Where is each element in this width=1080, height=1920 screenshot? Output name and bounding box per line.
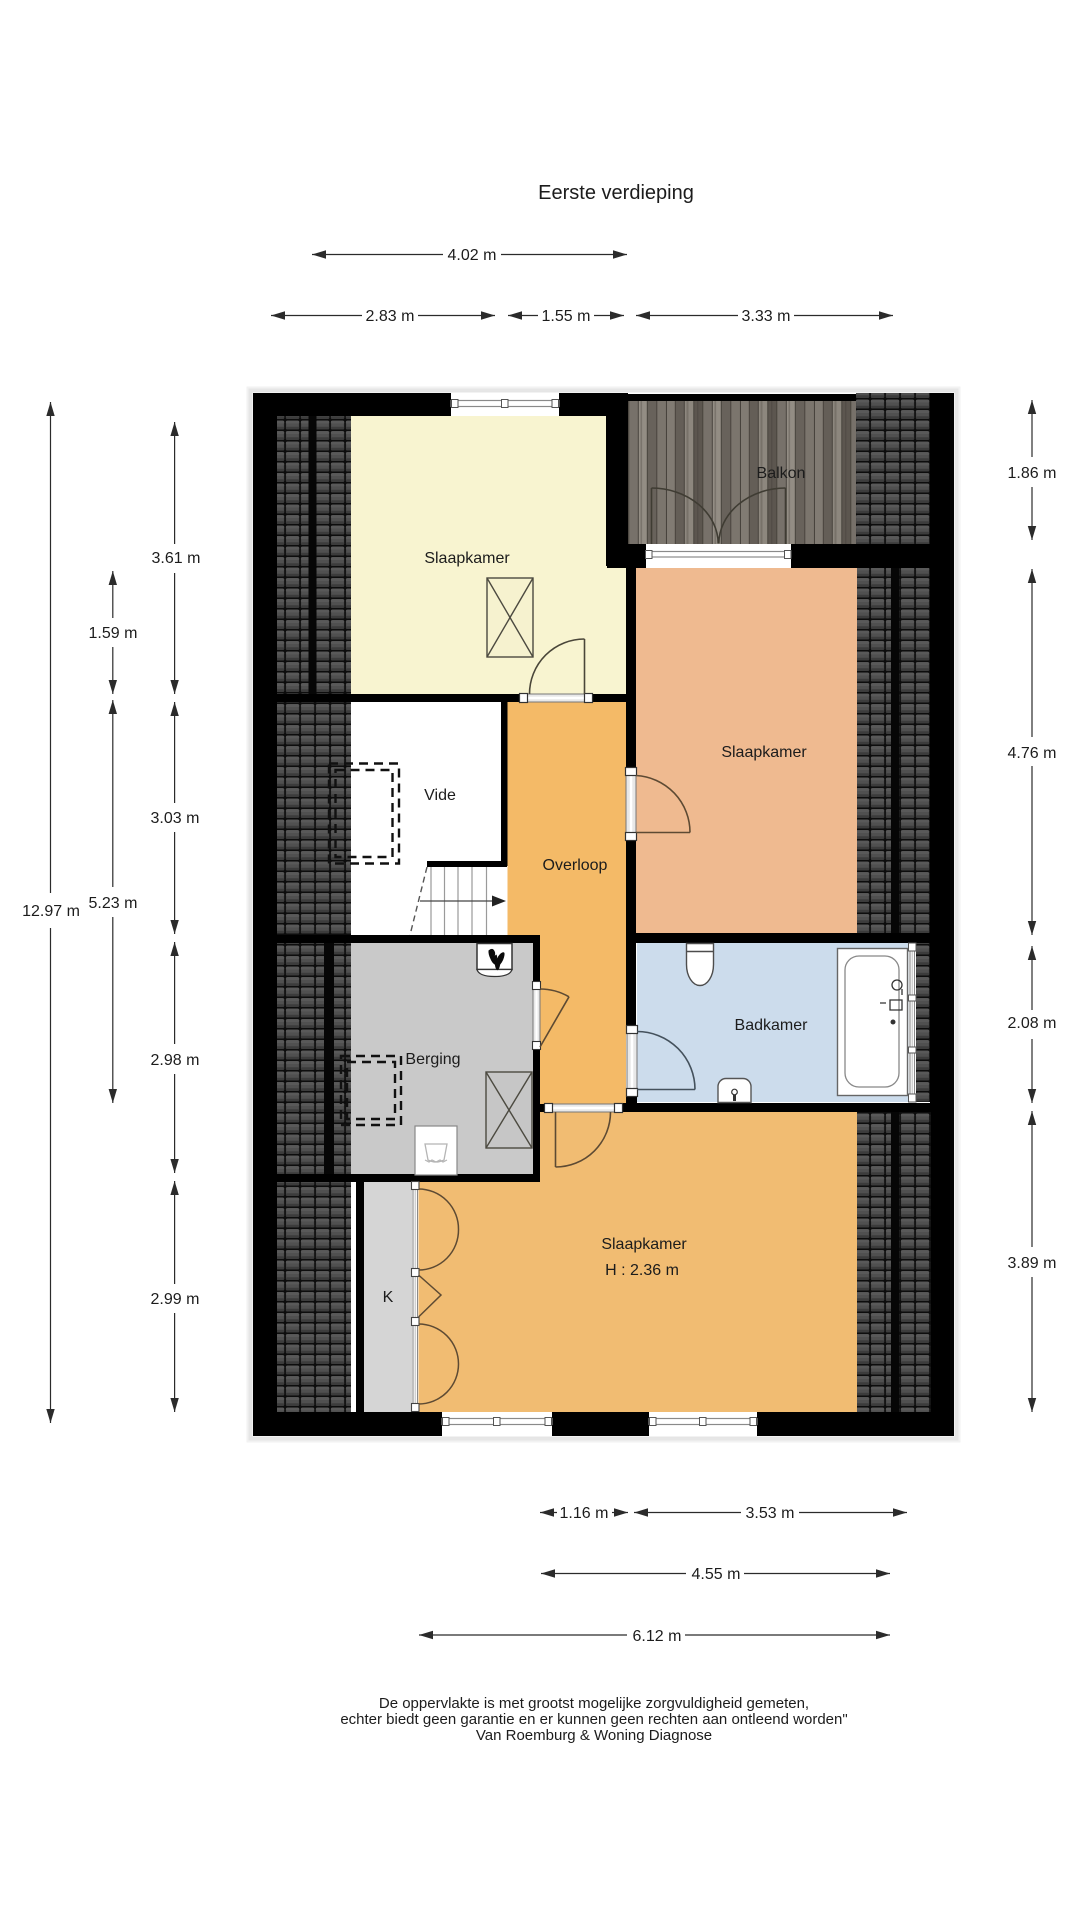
svg-text:Overloop: Overloop (543, 857, 608, 874)
svg-text:3.33 m: 3.33 m (742, 308, 791, 325)
svg-text:3.53 m: 3.53 m (746, 1505, 795, 1522)
svg-text:echter biedt geen garantie en: echter biedt geen garantie en er kunnen … (340, 1711, 847, 1728)
svg-text:Berging: Berging (405, 1051, 460, 1068)
svg-text:Badkamer: Badkamer (735, 1017, 809, 1034)
svg-text:4.76 m: 4.76 m (1008, 745, 1057, 762)
svg-text:3.03 m: 3.03 m (151, 810, 200, 827)
svg-text:1.16 m: 1.16 m (560, 1505, 609, 1522)
svg-text:Slaapkamer: Slaapkamer (721, 744, 807, 761)
svg-text:2.83 m: 2.83 m (366, 308, 415, 325)
svg-text:12.97 m: 12.97 m (22, 903, 80, 920)
svg-text:Slaapkamer: Slaapkamer (601, 1236, 687, 1253)
svg-text:K: K (383, 1289, 394, 1306)
svg-text:3.89 m: 3.89 m (1008, 1255, 1057, 1272)
svg-text:Balkon: Balkon (757, 465, 806, 482)
svg-text:2.08 m: 2.08 m (1008, 1015, 1057, 1032)
svg-text:De oppervlakte is met grootst: De oppervlakte is met grootst mogelijke … (379, 1695, 809, 1712)
svg-text:5.23 m: 5.23 m (89, 895, 138, 912)
svg-text:Van Roemburg & Woning Diagnose: Van Roemburg & Woning Diagnose (476, 1727, 712, 1744)
svg-text:4.02 m: 4.02 m (448, 247, 497, 264)
svg-text:1.55 m: 1.55 m (542, 308, 591, 325)
svg-text:2.99 m: 2.99 m (151, 1291, 200, 1308)
svg-text:Vide: Vide (424, 787, 456, 804)
svg-text:4.55 m: 4.55 m (692, 1566, 741, 1583)
svg-text:6.12 m: 6.12 m (633, 1628, 682, 1645)
svg-text:3.61 m: 3.61 m (152, 550, 201, 567)
svg-text:1.86 m: 1.86 m (1008, 465, 1057, 482)
svg-text:1.59 m: 1.59 m (89, 625, 138, 642)
svg-text:Slaapkamer: Slaapkamer (424, 550, 510, 567)
svg-text:H : 2.36 m: H : 2.36 m (605, 1262, 679, 1279)
svg-text:Eerste verdieping: Eerste verdieping (538, 182, 694, 204)
svg-text:2.98 m: 2.98 m (151, 1052, 200, 1069)
